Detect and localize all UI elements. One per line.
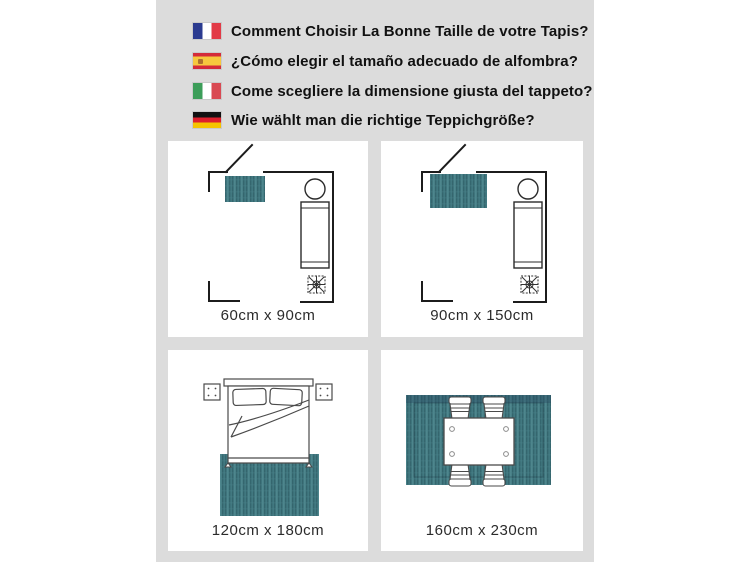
double-bed [224,379,313,467]
size-label: 120cm x 180cm [168,522,368,539]
header-row-italian: Come scegliere la dimensione giusta del … [193,76,593,106]
content-panel: Comment Choisir La Bonne Taille de votre… [156,0,594,562]
rug-size-card-90x150: 90cm x 150cm [381,141,583,337]
header-row-french: Comment Choisir La Bonne Taille de votre… [193,16,589,46]
pillow-left [233,388,267,405]
header-question-spanish: ¿Cómo elegir el tamaño adecuado de alfom… [231,53,578,70]
rug-60x90 [225,176,265,202]
rug-size-card-120x180: 120cm x 180cm [168,350,368,551]
side-table-circle [305,179,325,199]
dining-table-four-chairs-rug [381,350,583,520]
france-flag-icon [193,23,221,39]
nightstand-right [316,384,332,400]
double-bed-top-view-rug [168,350,368,520]
rug-dark-band [406,395,551,403]
rug-size-card-60x90: 60cm x 90cm [168,141,368,337]
header-question-german: Wie wählt man die richtige Teppichgröße? [231,112,535,129]
bedroom-floor-plan-small-rug [168,141,368,303]
bedroom-floor-plan-medium-rug [381,141,583,303]
chair-top-left [449,397,471,419]
size-label: 160cm x 230cm [381,522,583,539]
italy-flag-icon [193,83,221,99]
potted-plant [308,276,326,294]
console-furniture [514,202,542,268]
header-row-german: Wie wählt man die richtige Teppichgröße? [193,105,535,135]
chair-bottom-right [483,464,505,486]
dining-table [444,418,514,465]
header-question-french: Comment Choisir La Bonne Taille de votre… [231,23,589,40]
rug-90x150 [430,174,487,208]
size-label: 90cm x 150cm [381,307,583,324]
germany-flag-icon [193,112,221,128]
pillow-right [270,388,303,406]
chair-top-right [483,397,505,419]
header-question-italian: Come scegliere la dimensione giusta del … [231,83,593,100]
nightstand-left [204,384,220,400]
side-table-circle [518,179,538,199]
rug-size-card-160x230: 160cm x 230cm [381,350,583,551]
console-furniture [301,202,329,268]
chair-bottom-left [449,464,471,486]
spain-flag-icon [193,53,221,69]
potted-plant [521,276,539,294]
header-row-spanish: ¿Cómo elegir el tamaño adecuado de alfom… [193,46,578,76]
size-label: 60cm x 90cm [168,307,368,324]
